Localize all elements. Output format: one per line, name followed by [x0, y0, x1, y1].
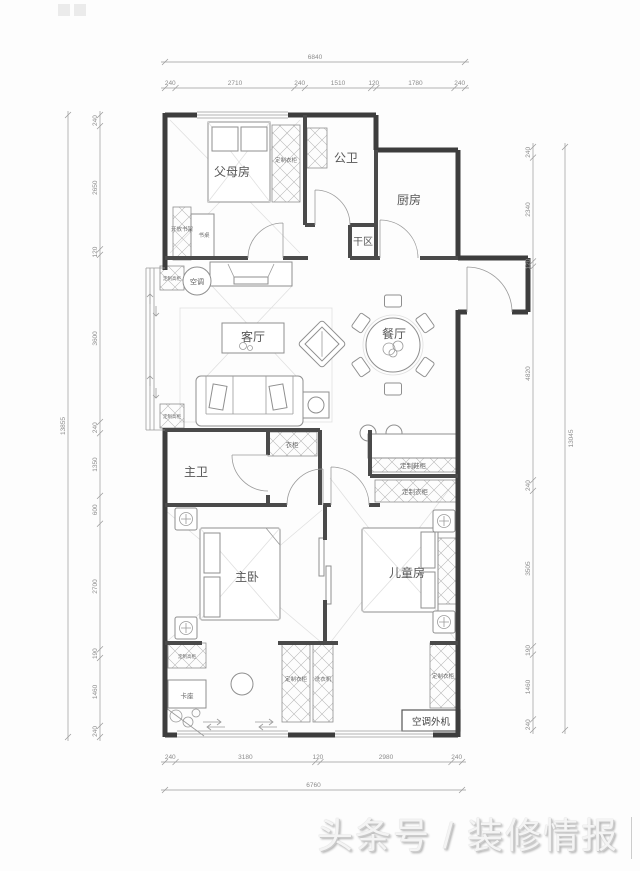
dim-label: 4820 — [525, 366, 532, 381]
dim-label: 2340 — [525, 202, 532, 217]
watermark-text: 头条号 / 装修情报 — [317, 815, 619, 856]
side-table — [303, 392, 329, 418]
armchair — [298, 320, 346, 368]
dim-label: 120 — [525, 258, 532, 269]
washer-label: 洗衣机 — [315, 675, 332, 683]
dim-label: 240 — [525, 147, 532, 158]
balcony-tall-cabinet-label: 定制高柜 — [178, 653, 196, 660]
dim-label: 1350 — [92, 457, 99, 472]
balcony-table — [231, 673, 253, 695]
kids-wardrobe-label: 定制衣柜 — [402, 487, 429, 496]
nightstand — [175, 508, 197, 530]
dim-label: 1780 — [408, 80, 423, 87]
dim-label: 1460 — [92, 684, 99, 699]
floorplan-page: 父母房 公卫 厨房 干区 客厅 餐厅 主卫 主卧 儿童房 空调 定制衣柜 开放书… — [0, 0, 640, 871]
dim-label: 3180 — [238, 754, 253, 761]
dim-left-segments: 24026501203600240135060027001901460240 — [92, 111, 103, 741]
sofa — [196, 376, 303, 426]
kids-desk — [360, 425, 456, 458]
dim-right-total: 13045 — [562, 143, 575, 734]
dim-left-total: 13855 — [60, 111, 71, 741]
nightstand — [433, 611, 455, 633]
dim-label: 600 — [92, 504, 99, 515]
bench-seat-label: 卡座 — [181, 691, 195, 700]
dim-label: 240 — [165, 754, 176, 761]
master-bed-door — [287, 469, 323, 505]
dim-label: 2980 — [379, 754, 394, 761]
public-bath-door — [315, 190, 350, 225]
dim-label: 240 — [525, 480, 532, 491]
kids-wardrobe-east-block — [437, 538, 456, 604]
kids-room-label: 儿童房 — [389, 565, 425, 580]
dim-bottom-total: 6760 — [161, 782, 466, 793]
dim-label: 1460 — [525, 679, 532, 694]
dim-label: 240 — [92, 422, 99, 433]
dim-label: 6760 — [306, 782, 321, 789]
desk-label: 书桌 — [198, 231, 210, 239]
master-bed-label: 主卧 — [235, 570, 259, 584]
dim-label: 1510 — [331, 80, 346, 87]
parents-room-label: 父母房 — [214, 164, 250, 179]
master-bath-label: 主卫 — [184, 465, 208, 479]
sliding-arrow-icon — [203, 719, 277, 730]
dim-bottom-segments: 24031801202980240 — [161, 754, 466, 765]
dim-label: 190 — [525, 645, 532, 656]
dim-label: 240 — [92, 115, 99, 126]
ac-label: 空调 — [190, 277, 204, 286]
dim-label: 3505 — [525, 561, 532, 576]
dim-label: 120 — [92, 246, 99, 257]
tall-cabinet-top-label: 定制高柜 — [163, 275, 181, 282]
dim-label: 120 — [312, 754, 323, 761]
dim-label: 3600 — [92, 331, 99, 346]
dim-label: 120 — [368, 80, 379, 87]
dim-label: 190 — [92, 648, 99, 659]
dim-label: 2710 — [228, 80, 243, 87]
parents-wardrobe-label: 定制衣柜 — [275, 156, 298, 164]
living-label: 客厅 — [241, 329, 265, 344]
public-bath-label: 公卫 — [334, 151, 358, 165]
parents-door — [248, 223, 283, 258]
kitchen-door — [380, 220, 418, 258]
plant — [166, 708, 204, 736]
dim-label: 2650 — [92, 180, 99, 195]
watermark: 头条号 / 装修情报 — [317, 807, 632, 859]
dim-label: 13855 — [60, 417, 67, 435]
dining-table — [351, 295, 435, 395]
dim-top-total: 6840 — [161, 54, 469, 65]
dim-top-segments: 240271024015101201780240 — [161, 80, 469, 91]
sliding-door-panels — [319, 538, 331, 604]
balcony-wardrobe-label: 定制衣柜 — [285, 675, 308, 683]
tv-cabinet — [210, 262, 292, 286]
right-wardrobe-label: 定制衣柜 — [432, 672, 455, 680]
ac-outdoor-label: 空调外机 — [412, 716, 451, 728]
window-arrow-icon — [147, 294, 159, 398]
dim-label: 13045 — [568, 429, 575, 447]
open-bookshelf-block — [173, 207, 191, 260]
entry-door — [467, 267, 512, 312]
dry-area-label: 干区 — [353, 236, 373, 248]
parents-bed — [208, 122, 270, 202]
shoe-cabinet-label: 定制鞋柜 — [400, 461, 427, 470]
master-bath-door — [232, 455, 268, 491]
kitchen-label: 厨房 — [397, 192, 421, 207]
dim-label: 6840 — [308, 54, 323, 61]
nightstand — [433, 510, 455, 532]
dim-label: 240 — [294, 80, 305, 87]
watermark-bar — [631, 817, 632, 859]
tall-cabinet-bottom-label: 定制高柜 — [163, 413, 181, 420]
floorplan-drawing: 父母房 公卫 厨房 干区 客厅 餐厅 主卫 主卧 儿童房 空调 定制衣柜 开放书… — [0, 0, 640, 871]
dining-label: 餐厅 — [382, 326, 406, 341]
dim-label: 240 — [451, 754, 462, 761]
dim-label: 240 — [92, 726, 99, 737]
dim-label: 240 — [525, 719, 532, 730]
shower-block — [307, 128, 327, 168]
dim-right-segments: 2402340120482024035051901460240 — [525, 143, 536, 734]
scan-artifact — [58, 4, 86, 16]
dim-label: 240 — [165, 80, 176, 87]
open-bookshelf-label: 开放书架 — [171, 225, 194, 233]
nightstand — [175, 617, 197, 639]
dim-label: 2700 — [92, 579, 99, 594]
dim-label: 240 — [454, 80, 465, 87]
hall-wardrobe-label: 衣柜 — [286, 440, 300, 449]
